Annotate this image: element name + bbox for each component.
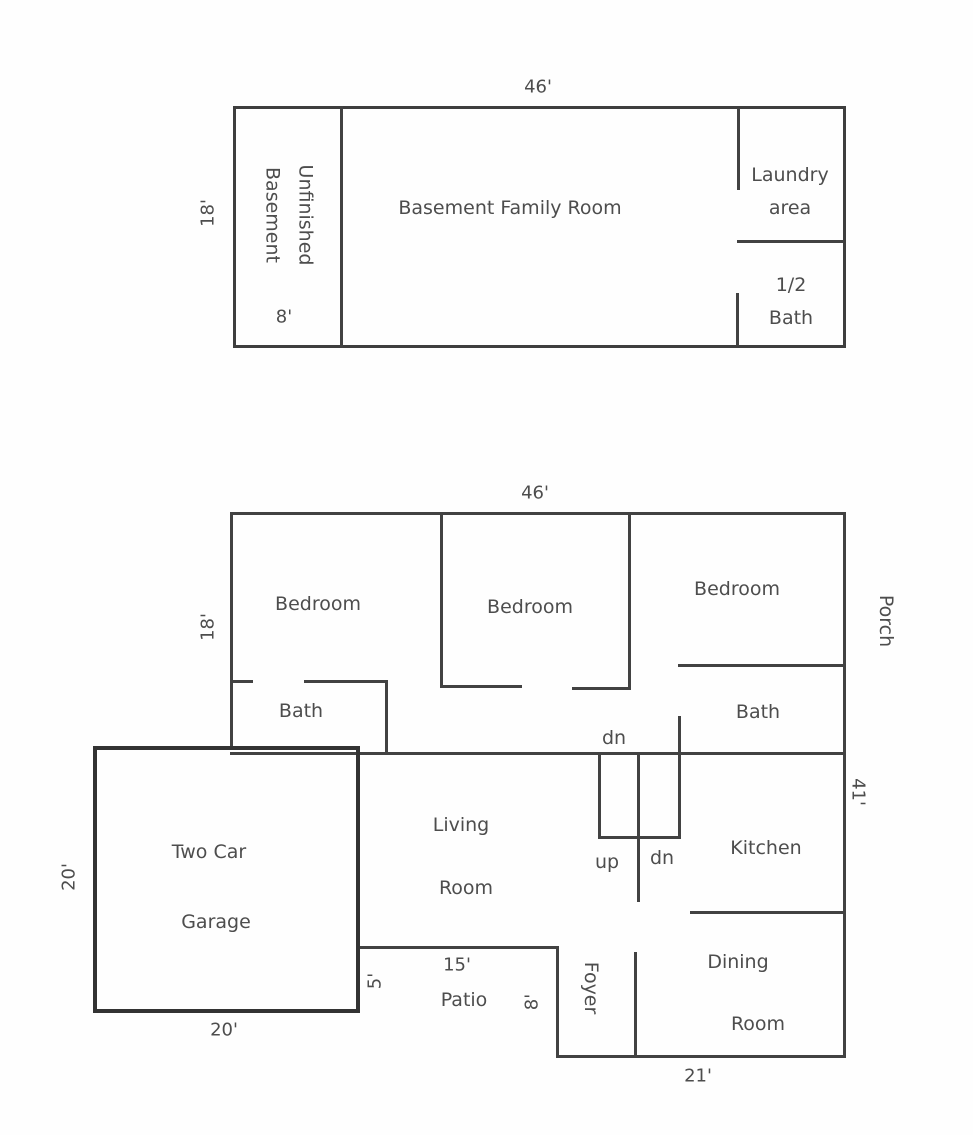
garage-label-line1: Two Car: [172, 837, 246, 867]
main-left-dim: 18': [195, 613, 224, 641]
living-label-line1: Living: [433, 810, 490, 840]
kitchen-label: Kitchen: [730, 833, 801, 863]
bath-left-door-stub: [230, 680, 253, 683]
porch-label: Porch: [871, 595, 901, 647]
bath-right-label: Bath: [736, 697, 780, 727]
bath-left-top-wall: [304, 680, 388, 683]
patio-side-dim: 5': [362, 973, 391, 989]
up-label: up: [595, 847, 619, 877]
laundry-line1: Laundry: [751, 159, 828, 192]
basement-family-room-label: Basement Family Room: [398, 193, 621, 223]
main-bottom-dim: 21': [684, 1063, 712, 1092]
bedroom1-2-divider: [440, 512, 443, 688]
bedroom2-bottom-wall-left: [440, 685, 522, 688]
main-bottom-wall: [557, 1055, 846, 1058]
basement-divider-wall: [340, 106, 343, 348]
bedroom2-label: Bedroom: [487, 592, 573, 622]
kitchen-dining-wall: [690, 911, 846, 914]
patio-width-dim: 15': [443, 952, 471, 981]
laundry-area-label: Laundry area: [751, 159, 828, 226]
garage-label-line2: Garage: [181, 907, 251, 937]
dining-label-line1: Dining: [707, 947, 768, 977]
foyer-label: Foyer: [576, 962, 606, 1015]
bedroom3-bottom-wall: [678, 664, 846, 667]
half-bath-label: 1/2 Bath: [769, 269, 813, 336]
basement-left-dim: 18': [195, 199, 224, 227]
bath-right-stair-wall: [678, 716, 681, 839]
unfinished-basement-label: Unfinished Basement: [255, 165, 322, 266]
basement-width-dim: 46': [524, 74, 552, 103]
patio-top-wall: [360, 946, 559, 949]
laundry-left-wall: [737, 108, 740, 190]
main-width-dim: 46': [521, 480, 549, 509]
patio-label: Patio: [441, 985, 488, 1015]
garage-outline: [93, 746, 360, 1013]
half-bath-left-wall: [736, 293, 739, 346]
bath-left-right-wall: [385, 680, 388, 754]
bath-left-label: Bath: [279, 696, 323, 726]
bedroom1-label: Bedroom: [275, 589, 361, 619]
dn-stairs-label: dn: [650, 843, 674, 873]
main-left-wall: [230, 512, 233, 750]
laundry-line2: area: [751, 192, 828, 225]
patio-right-dim: 8': [519, 994, 548, 1010]
half-bath-line2: Bath: [769, 302, 813, 335]
unfinished-basement-dim: 8': [276, 304, 292, 333]
half-bath-line1: 1/2: [769, 269, 813, 302]
unfinished-line1: Unfinished: [288, 165, 321, 266]
dn-hall-label: dn: [602, 723, 626, 753]
main-right-dim: 41': [843, 778, 872, 806]
bedroom2-3-divider: [628, 512, 631, 690]
bedroom2-bottom-wall-right: [572, 687, 631, 690]
stair-divider-wall: [637, 752, 640, 902]
floor-plan-page: 46' 18' Unfinished Basement 8' Basement …: [0, 0, 973, 1135]
bedroom3-label: Bedroom: [694, 574, 780, 604]
dining-label-line2: Room: [731, 1009, 785, 1039]
living-label-line2: Room: [439, 873, 493, 903]
laundry-bottom-wall: [737, 240, 844, 243]
garage-left-dim: 20': [56, 863, 85, 891]
basement-outline: [233, 106, 846, 348]
patio-right-wall: [556, 946, 559, 1058]
unfinished-line2: Basement: [255, 165, 288, 266]
main-top-wall: [230, 512, 846, 515]
foyer-wall: [634, 952, 637, 1058]
stair-left-wall: [598, 752, 601, 839]
garage-width-dim: 20': [210, 1017, 238, 1046]
